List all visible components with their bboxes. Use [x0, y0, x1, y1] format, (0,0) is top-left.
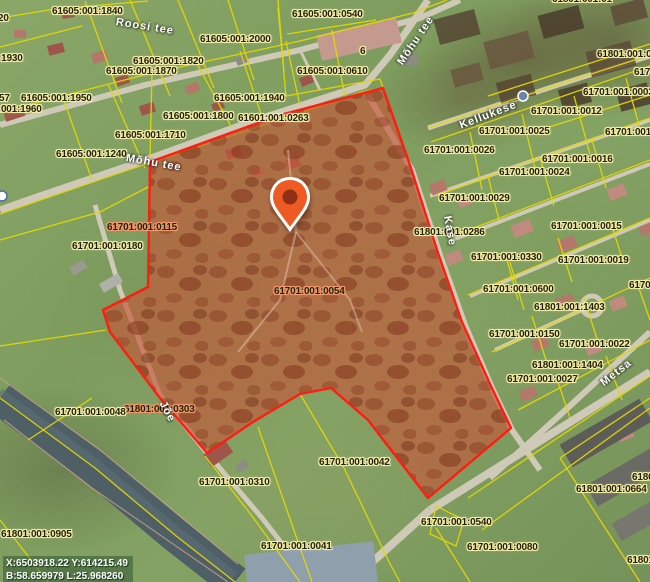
cadastral-label: 61801:001:01 [552, 0, 612, 5]
cadastral-label: 61701:001:0600 [483, 284, 554, 295]
cadastral-label: 61801:001:1403 [534, 302, 605, 313]
cadastral-label: 61605:001:1940 [214, 93, 285, 104]
cadastral-label: 61701:001:0054 [274, 286, 345, 297]
cadastral-label: 20 [0, 13, 9, 24]
bus-stop-icon [518, 91, 528, 101]
coordinate-line-bl: B:58.659979 L:25.968260 [6, 570, 128, 582]
cadastral-label: 61701:001:0015 [551, 221, 622, 232]
cadastral-label: 61701: [629, 280, 650, 291]
cadastral-label: 61605:001:0540 [292, 9, 363, 20]
cadastral-label: 61701:001:0012 [531, 106, 602, 117]
bus-stop-icon [0, 191, 7, 201]
cadastral-label: 61605:001:1800 [163, 111, 234, 122]
cadastral-label: 61701:001:0019 [558, 255, 629, 266]
location-marker-icon[interactable] [266, 175, 314, 235]
cadastral-label: 61701:001:0003 [583, 87, 650, 98]
cadastral-label: 61701:001:0080 [467, 542, 538, 553]
cadastral-label: 61605:001:2000 [200, 34, 271, 45]
cadastral-label: 61701:001:0022 [559, 339, 630, 350]
cadastral-label: 6 [360, 46, 365, 57]
cadastral-label: 61701:001:0 [605, 127, 650, 138]
cadastral-label: 61701:001: [634, 67, 650, 78]
cadastral-label: 61701:001:0150 [489, 329, 560, 340]
cadastral-label: 61701:001:0330 [471, 252, 542, 263]
cadastral-label: 61605:001:1930 [0, 53, 23, 64]
cadastral-label: 61801 [632, 472, 650, 483]
cadastral-label: 61801:001:0664 [576, 484, 647, 495]
cadastral-label: 61701:001:0180 [72, 241, 143, 252]
coordinate-line-xy: X:6503918.22 Y:614215.49 [6, 557, 128, 570]
cadastral-label: 61701:001:0024 [499, 167, 570, 178]
cadastral-label: 61701:001:0026 [424, 145, 495, 156]
map-viewport[interactable]: 61605:001:18402061605:001:054061605:001:… [0, 0, 650, 582]
cadastral-label: 61605:001:1870 [106, 66, 177, 77]
cadastral-label: 61801:001:01 [597, 49, 650, 60]
cadastral-label: 61801:001:1404 [532, 360, 603, 371]
cadastral-label: 61701:001:0041 [261, 541, 332, 552]
cadastral-label: 61605:001:1240 [56, 149, 127, 160]
cadastral-label: 61605:001:1960 [0, 104, 42, 115]
cadastral-label: 61601:001:0263 [238, 113, 309, 124]
cadastral-label: 57 [0, 93, 10, 104]
cadastral-label: 61605:001:1710 [115, 130, 186, 141]
cadastral-label: 61701:001:0540 [421, 517, 492, 528]
cadastral-label: 61605:001:0610 [297, 66, 368, 77]
cadastral-label: 61605:001:1950 [21, 93, 92, 104]
cadastral-label: 61701:001:0310 [199, 477, 270, 488]
cadastral-label: 61701:001:0027 [507, 374, 578, 385]
cadastral-label: 61801:001:0905 [1, 529, 72, 540]
cadastral-label: 61701:001:0016 [542, 154, 613, 165]
cadastral-label: 61801:0 [627, 555, 650, 566]
cadastral-label: 61701:001:0025 [479, 126, 550, 137]
cadastral-label: 61701:001:0048 [55, 407, 126, 418]
cadastral-label: 61701:001:0042 [319, 457, 390, 468]
cadastral-label: 61701:001:0029 [439, 193, 510, 204]
cadastral-label: 61701:001:0115 [107, 222, 177, 233]
coordinate-readout: X:6503918.22 Y:614215.49 B:58.659979 L:2… [3, 556, 133, 582]
cadastral-label: 61605:001:1840 [52, 6, 123, 17]
